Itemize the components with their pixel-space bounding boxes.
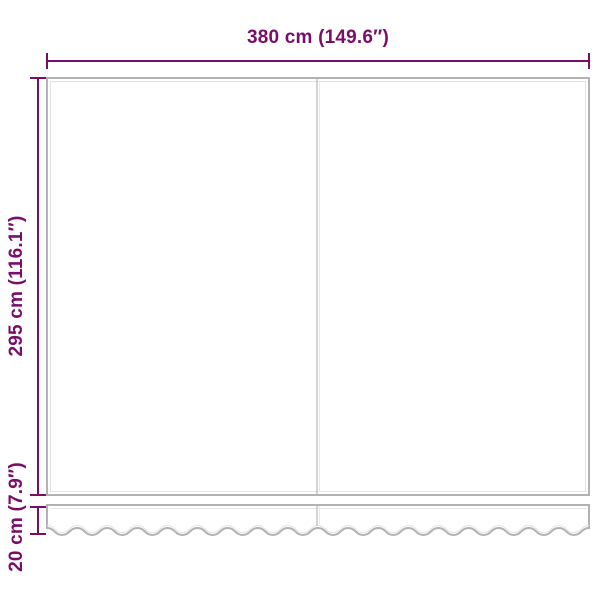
valance-dimension-line xyxy=(30,507,46,534)
height-dimension-label: 295 cm (116.1″) xyxy=(6,216,28,357)
width-dimension-line xyxy=(47,53,589,69)
dimension-diagram-canvas: 380 cm (149.6″) 295 cm (116.1″) 20 cm (7… xyxy=(0,0,600,600)
height-dimension-line xyxy=(30,78,46,495)
awning-fabric-diagram xyxy=(0,0,600,600)
valance-dimension-label: 20 cm (7.9″) xyxy=(6,462,28,572)
width-dimension-label: 380 cm (149.6″) xyxy=(247,27,389,49)
fabric-panel-outline xyxy=(47,78,589,495)
